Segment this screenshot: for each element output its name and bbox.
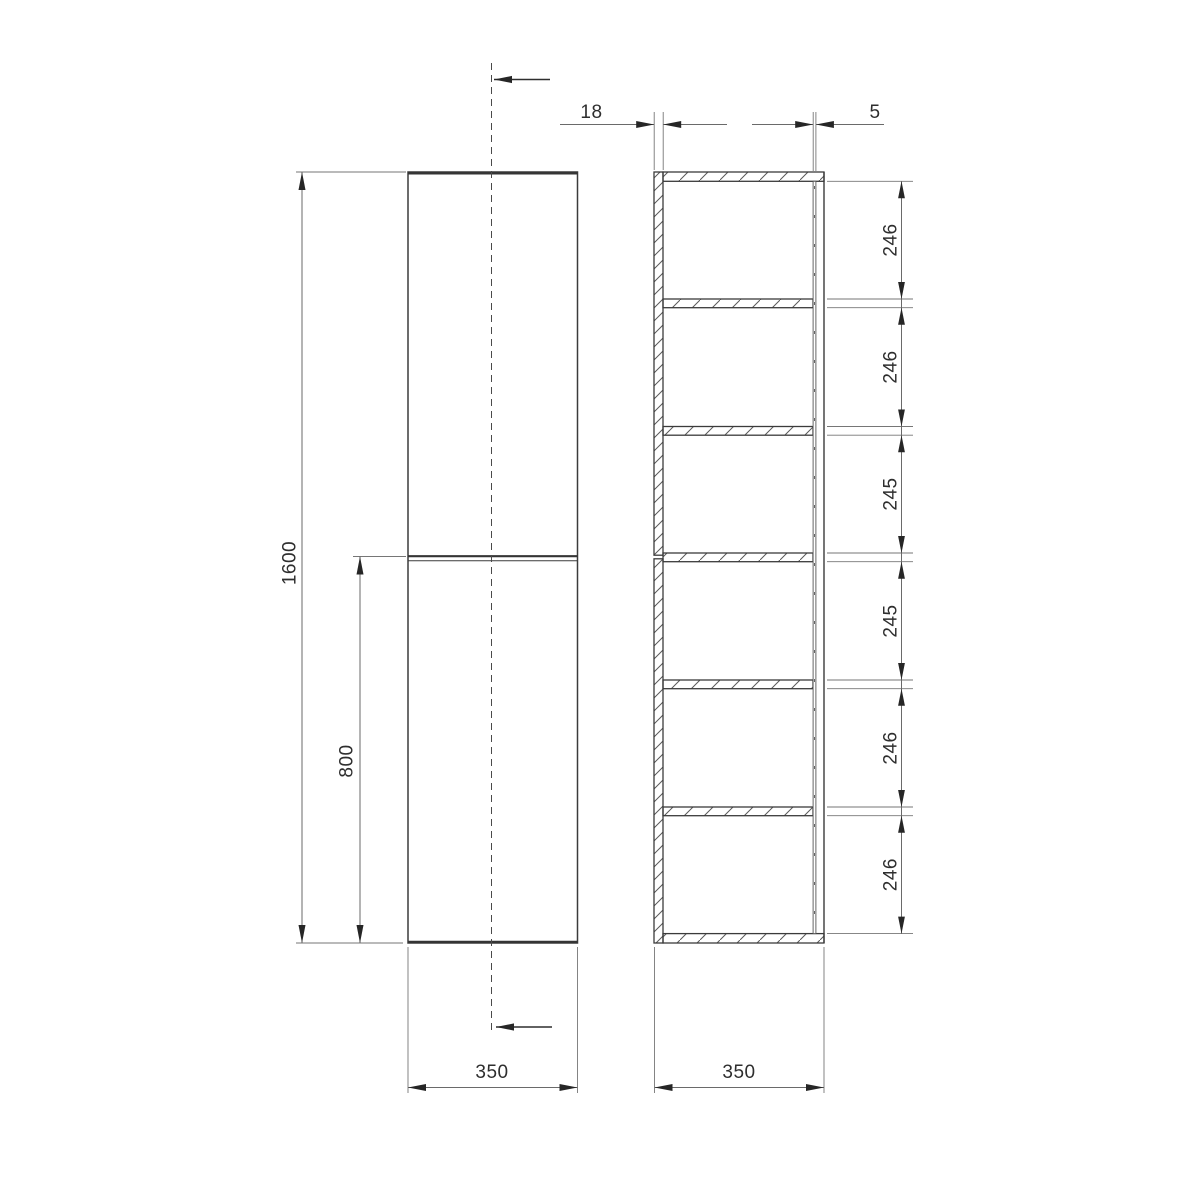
direction-arrow-top [494,76,550,83]
dim-depth-350-section: 350 [655,947,825,1093]
dim-openings: 246 246 245 245 246 246 [827,181,913,933]
right-arrowhead-icon [806,1084,824,1091]
direction-arrow-bottom [496,1023,552,1030]
right-arrowhead-icon [636,121,654,128]
dim-depth-label: 350 [722,1062,755,1083]
back-panel-section [813,181,816,933]
right-arrowhead-icon [795,121,813,128]
dim-width-350-front: 350 [408,947,578,1093]
up-arrowhead-icon [898,689,905,706]
up-arrowhead-icon [898,308,905,325]
shelf-section [663,807,813,816]
left-arrowhead-icon [408,1084,426,1091]
section-view: 18 5 [560,102,913,1093]
drawing-canvas: 1600 800 350 [0,0,1200,1200]
dim-back-thickness-label: 5 [869,102,880,123]
left-arrowhead-icon [494,76,512,83]
up-arrowhead-icon [898,816,905,833]
dim-panel-thickness-18: 18 [560,102,727,170]
down-arrowhead-icon [898,410,905,427]
shelf-section [663,427,813,436]
shelf-section [663,553,813,562]
dim-width-front-label: 350 [475,1062,508,1083]
cabinet-front-outline [408,172,578,943]
dim-back-thickness-5: 5 [752,102,884,171]
left-arrowhead-icon [655,1084,673,1091]
front-view: 1600 800 350 [280,63,578,1093]
up-arrowhead-icon [357,557,364,575]
dim-opening-label-5: 246 [881,731,902,764]
bottom-panel-section [663,934,824,943]
up-arrowhead-icon [898,435,905,452]
dim-door-label: 800 [337,744,358,777]
dim-height-1600: 1600 [280,172,407,943]
down-arrowhead-icon [898,282,905,299]
up-arrowhead-icon [898,562,905,579]
door-panel-lower-section [654,559,663,943]
dim-opening-label-4: 245 [881,604,902,637]
dim-opening-label-1: 246 [881,223,902,256]
down-arrowhead-icon [357,925,364,943]
shelf-section [663,299,813,308]
door-panel-upper-section [654,172,663,555]
dim-opening-label-6: 246 [881,858,902,891]
down-arrowhead-icon [898,917,905,934]
down-arrowhead-icon [299,925,306,943]
left-arrowhead-icon [816,121,834,128]
left-arrowhead-icon [663,121,681,128]
dim-height-label: 1600 [280,541,301,585]
dim-door-800: 800 [337,557,407,944]
dim-panel-thickness-label: 18 [580,102,602,123]
dim-opening-label-3: 245 [881,477,902,510]
left-arrowhead-icon [496,1023,514,1030]
top-panel-section [663,172,824,181]
down-arrowhead-icon [898,790,905,807]
cabinet-technical-drawing: 1600 800 350 [0,0,1200,1200]
right-arrowhead-icon [560,1084,578,1091]
up-arrowhead-icon [299,172,306,190]
dim-opening-label-2: 246 [881,350,902,383]
shelf-section [663,680,813,689]
down-arrowhead-icon [898,663,905,680]
up-arrowhead-icon [898,181,905,198]
down-arrowhead-icon [898,536,905,553]
